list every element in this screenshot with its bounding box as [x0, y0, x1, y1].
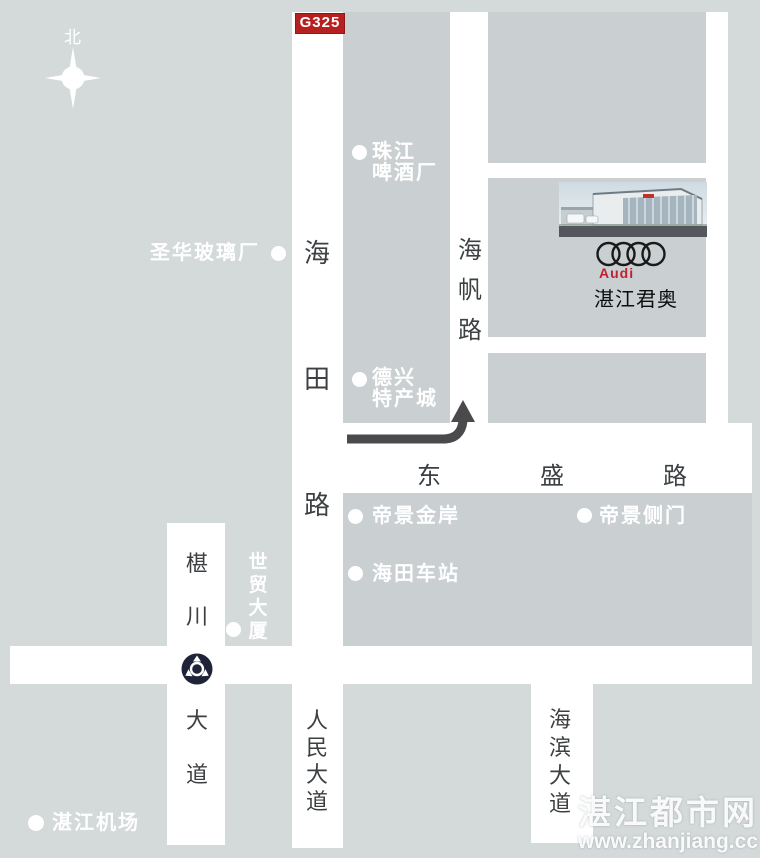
watermark-sitename: 湛江都市网	[578, 795, 758, 831]
poi-label-dijing-jinan: 帝景金岸	[372, 506, 460, 527]
road-label-haibin: 海滨大道	[547, 709, 573, 821]
poi-dot-shenghua-glass	[271, 246, 286, 261]
highway-badge-g325: G325	[295, 13, 345, 34]
road-label-shenchuan-upper: 椹川	[184, 553, 210, 659]
poi-label-zhujiang-brewery: 珠江 啤酒厂	[372, 142, 438, 184]
poi-dot-dijing-side-gate	[577, 508, 592, 523]
city-block-north-of-dealer	[488, 12, 706, 163]
city-block-haitian-haifan	[343, 12, 450, 423]
poi-dot-shimao-tower	[226, 622, 241, 637]
dealer-photo-illustration	[559, 182, 707, 237]
audi-brand-label: Audi	[599, 265, 634, 281]
dealer-access-strip-top	[488, 163, 706, 178]
poi-dot-haitian-station	[348, 566, 363, 581]
watermark-url: www.zhanjiang.cc	[578, 831, 758, 853]
dealer-access-strip-bottom	[488, 337, 706, 353]
dealer-name: 湛江君奥	[594, 283, 678, 312]
poi-dot-dexing-market	[352, 372, 367, 387]
road-east-vertical	[706, 12, 728, 426]
compass-rose-icon	[40, 45, 106, 113]
poi-dot-airport	[28, 815, 44, 831]
poi-dot-zhujiang-brewery	[352, 145, 367, 160]
road-label-shenchuan-lower: 大道	[184, 710, 210, 818]
poi-label-airport: 湛江机场	[52, 813, 140, 834]
city-block-south-of-dealer	[488, 353, 706, 423]
poi-dot-dijing-jinan	[348, 509, 363, 524]
road-crosstown	[10, 646, 752, 684]
audi-rings-icon	[596, 240, 666, 268]
map-canvas: G325 北	[0, 0, 760, 858]
watermark: 湛江都市网 www.zhanjiang.cc	[578, 795, 758, 853]
roundabout-icon	[180, 652, 214, 686]
road-haifan	[450, 12, 488, 426]
poi-label-shimao-tower: 世贸大厦	[246, 553, 270, 645]
road-label-renmin: 人民大道	[304, 710, 330, 818]
road-label-haitian: 海田路	[302, 240, 332, 618]
poi-label-dexing-market: 德兴 特产城	[372, 368, 438, 410]
road-label-dongsheng: 东盛路	[417, 456, 760, 491]
poi-label-shenghua-glass: 圣华玻璃厂	[150, 243, 260, 264]
poi-label-dijing-side-gate: 帝景侧门	[599, 506, 687, 527]
poi-label-haitian-station: 海田车站	[372, 564, 460, 585]
road-label-haifan: 海帆路	[456, 239, 484, 359]
